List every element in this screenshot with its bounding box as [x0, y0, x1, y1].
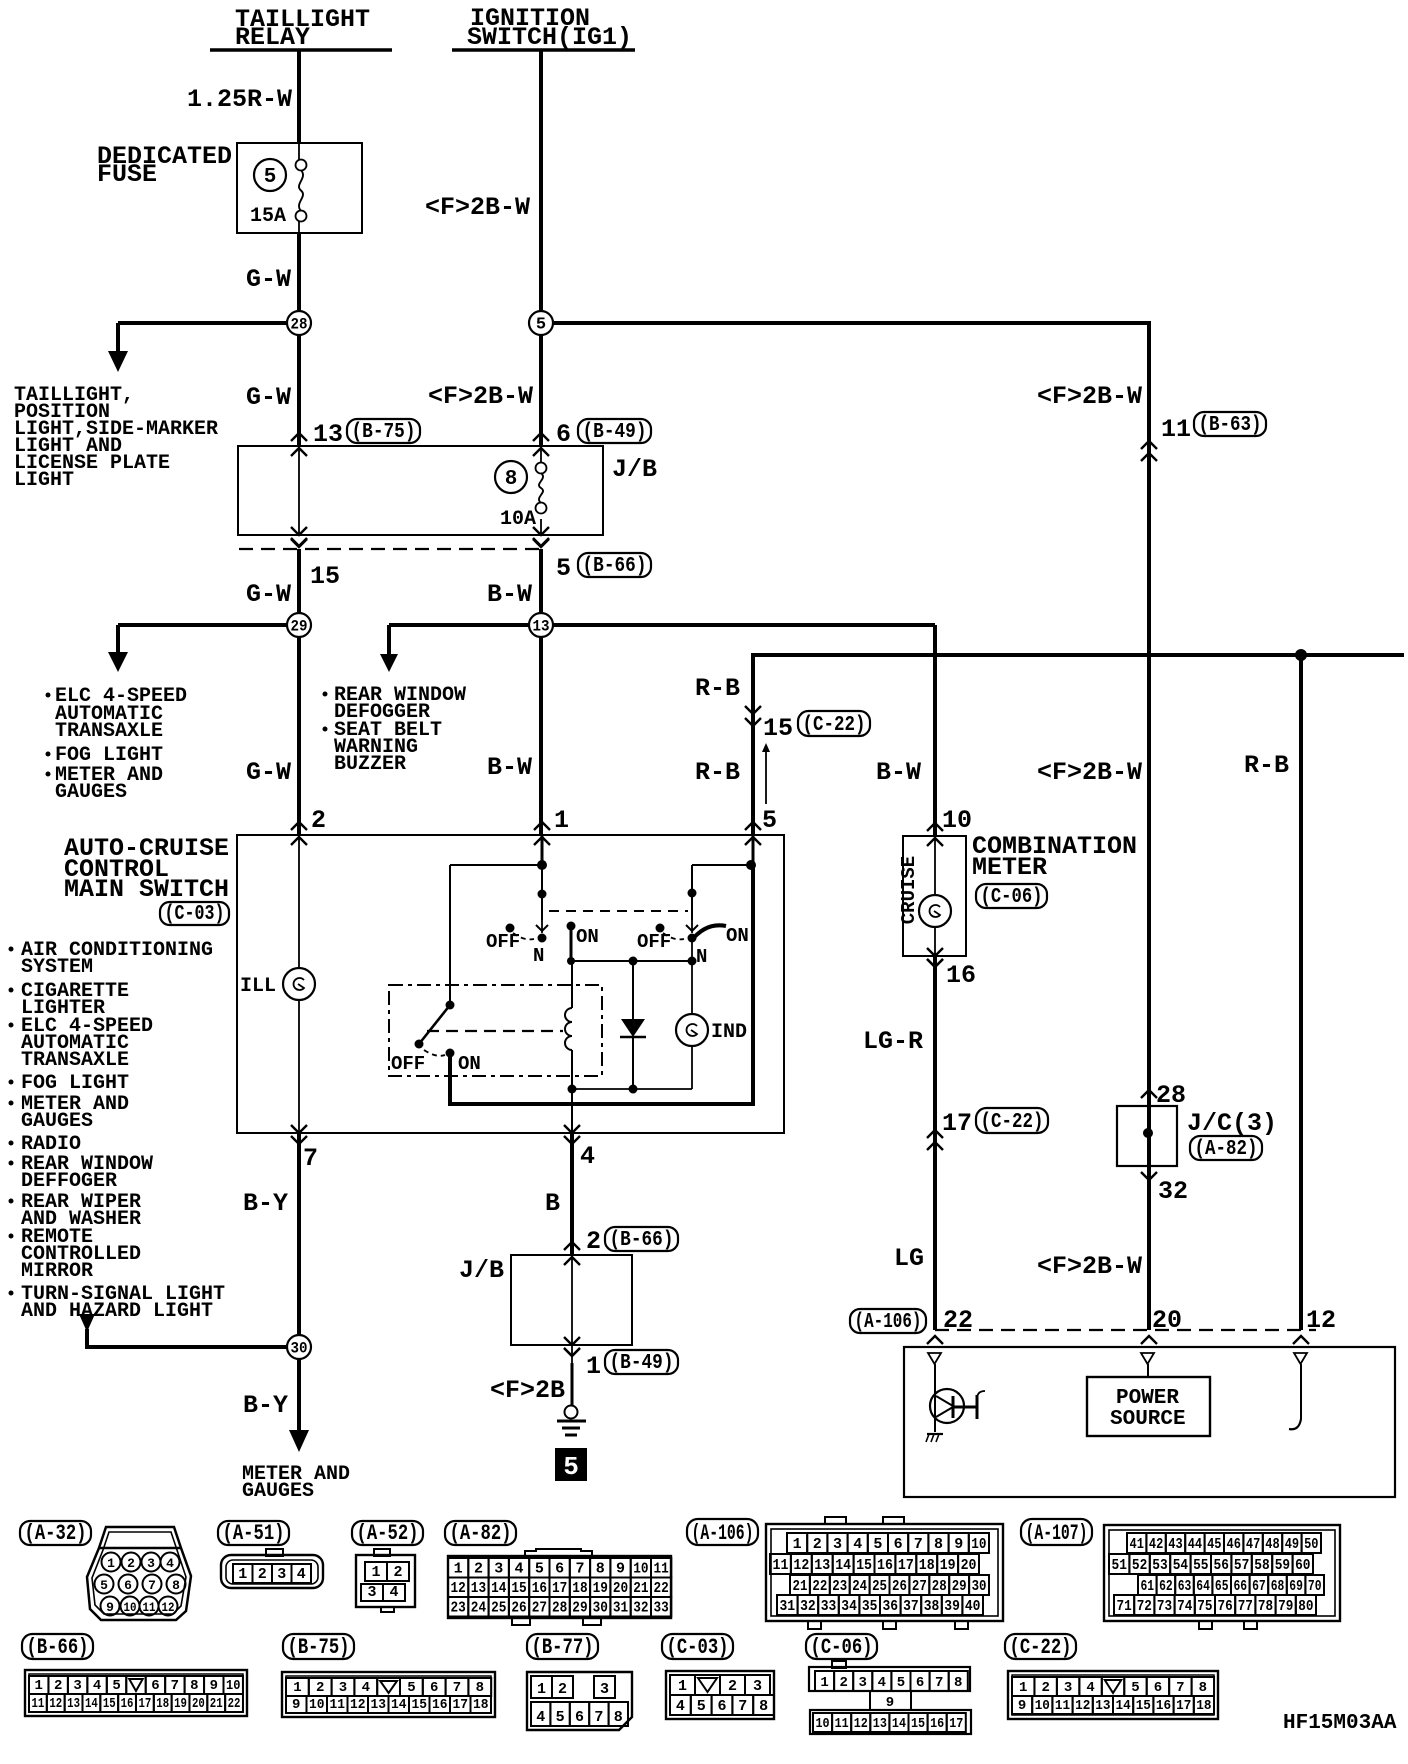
svg-text:28: 28 — [932, 1578, 947, 1595]
svg-text:N: N — [696, 946, 707, 968]
svg-text:(B-63): (B-63) — [1199, 414, 1262, 437]
svg-text:11: 11 — [773, 1557, 789, 1574]
svg-text:7: 7 — [303, 1144, 318, 1173]
svg-text:33: 33 — [821, 1598, 837, 1615]
svg-text:B: B — [545, 1189, 560, 1218]
svg-text:HF15M03AA: HF15M03AA — [1283, 1712, 1397, 1735]
svg-text:7: 7 — [935, 1675, 943, 1691]
svg-text:SWITCH(IG1): SWITCH(IG1) — [467, 23, 632, 52]
svg-text:METER: METER — [972, 853, 1047, 882]
svg-text:11: 11 — [654, 1561, 669, 1578]
svg-text:59: 59 — [1275, 1557, 1290, 1574]
svg-text:18: 18 — [919, 1557, 935, 1574]
svg-text:2: 2 — [813, 1536, 822, 1553]
svg-text:76: 76 — [1218, 1598, 1233, 1615]
svg-text:SOURCE: SOURCE — [1110, 1408, 1186, 1431]
svg-text:3: 3 — [147, 1556, 155, 1571]
svg-text:21: 21 — [210, 1696, 223, 1712]
svg-text:10: 10 — [124, 1600, 137, 1615]
svg-text:17: 17 — [138, 1696, 151, 1712]
svg-text:9: 9 — [1018, 1698, 1026, 1714]
svg-text:TRANSAXLE: TRANSAXLE — [21, 1049, 129, 1072]
svg-text:34: 34 — [841, 1598, 857, 1615]
svg-text:OFF: OFF — [637, 931, 671, 953]
svg-text:3: 3 — [277, 1566, 286, 1583]
svg-text:72: 72 — [1137, 1598, 1152, 1615]
svg-text:29: 29 — [291, 618, 308, 636]
svg-text:1: 1 — [35, 1678, 43, 1694]
svg-text:28: 28 — [552, 1600, 567, 1617]
svg-text:1: 1 — [554, 806, 569, 835]
svg-text:10: 10 — [226, 1678, 240, 1694]
svg-text:(A-51): (A-51) — [223, 1521, 285, 1546]
svg-text:SYSTEM: SYSTEM — [21, 956, 93, 979]
svg-text:10: 10 — [309, 1697, 325, 1713]
svg-text:6: 6 — [1154, 1680, 1162, 1696]
svg-text:5: 5 — [697, 1698, 706, 1715]
svg-text:17: 17 — [453, 1697, 469, 1713]
svg-text:40: 40 — [965, 1598, 981, 1615]
svg-text:35: 35 — [862, 1598, 878, 1615]
svg-text:3: 3 — [73, 1678, 81, 1694]
svg-text:16: 16 — [877, 1557, 893, 1574]
svg-text:30: 30 — [972, 1578, 987, 1595]
svg-text:36: 36 — [883, 1598, 899, 1615]
svg-text:(A-106): (A-106) — [855, 1311, 922, 1334]
svg-text:13: 13 — [873, 1716, 887, 1732]
svg-text:55: 55 — [1193, 1557, 1208, 1574]
svg-text:30: 30 — [291, 1340, 308, 1358]
svg-text:3: 3 — [833, 1536, 842, 1553]
svg-text:(C-22): (C-22) — [981, 1111, 1044, 1134]
svg-text:G-W: G-W — [246, 383, 291, 412]
svg-text:37: 37 — [903, 1598, 919, 1615]
svg-text:2: 2 — [558, 1681, 567, 1698]
svg-text:26: 26 — [892, 1578, 907, 1595]
svg-text:<F>2B: <F>2B — [490, 1376, 565, 1405]
svg-text:1: 1 — [107, 1556, 115, 1571]
svg-text:75: 75 — [1197, 1598, 1212, 1615]
svg-text:1: 1 — [454, 1561, 463, 1578]
svg-text:7: 7 — [914, 1536, 923, 1553]
svg-text:ON: ON — [726, 925, 749, 947]
svg-text:10: 10 — [971, 1536, 986, 1553]
svg-text:4: 4 — [166, 1556, 174, 1571]
svg-text:<F>2B-W: <F>2B-W — [1037, 1252, 1142, 1281]
svg-text:(A-107): (A-107) — [1026, 1521, 1088, 1546]
svg-text:9: 9 — [954, 1536, 963, 1553]
svg-text:11: 11 — [835, 1716, 849, 1732]
svg-text:6: 6 — [894, 1536, 903, 1553]
svg-text:9: 9 — [886, 1695, 894, 1711]
svg-text:79: 79 — [1278, 1598, 1293, 1615]
svg-text:DEFFOGER: DEFFOGER — [21, 1170, 117, 1193]
svg-text:20: 20 — [613, 1580, 628, 1597]
svg-text:20: 20 — [192, 1696, 205, 1712]
svg-text:19: 19 — [940, 1557, 956, 1574]
svg-text:64: 64 — [1196, 1578, 1210, 1595]
svg-text:5: 5 — [873, 1536, 882, 1553]
svg-text:AND HAZARD LIGHT: AND HAZARD LIGHT — [21, 1300, 213, 1323]
svg-text:31: 31 — [613, 1600, 628, 1617]
svg-text:14: 14 — [1116, 1698, 1131, 1714]
svg-text:2: 2 — [311, 806, 326, 835]
svg-text:5: 5 — [535, 1561, 544, 1578]
svg-text:6: 6 — [151, 1678, 159, 1694]
svg-text:1: 1 — [820, 1675, 828, 1691]
svg-text:1: 1 — [238, 1566, 247, 1583]
svg-text:11: 11 — [143, 1600, 156, 1615]
svg-text:21: 21 — [633, 1580, 648, 1597]
svg-text:67: 67 — [1252, 1578, 1266, 1595]
svg-text:17: 17 — [1176, 1698, 1191, 1714]
svg-text:B-Y: B-Y — [243, 1189, 288, 1218]
svg-text:4: 4 — [1086, 1680, 1094, 1696]
svg-text:13: 13 — [471, 1580, 486, 1597]
svg-text:13: 13 — [533, 618, 550, 636]
svg-text:32: 32 — [1158, 1177, 1188, 1206]
svg-text:32: 32 — [633, 1600, 648, 1617]
svg-text:GAUGES: GAUGES — [242, 1480, 314, 1503]
svg-text:<F>2B-W: <F>2B-W — [1037, 758, 1142, 787]
svg-text:POWER: POWER — [1116, 1387, 1179, 1410]
svg-text:5: 5 — [1131, 1680, 1139, 1696]
svg-text:47: 47 — [1246, 1536, 1260, 1553]
svg-text:50: 50 — [1304, 1536, 1318, 1553]
svg-text:63: 63 — [1178, 1578, 1192, 1595]
svg-text:1.25R-W: 1.25R-W — [187, 85, 292, 114]
svg-text:11: 11 — [32, 1696, 45, 1712]
svg-text:7: 7 — [148, 1578, 156, 1593]
svg-text:R-B: R-B — [695, 758, 740, 787]
svg-text:(A-106): (A-106) — [692, 1521, 754, 1546]
svg-text:ON: ON — [458, 1053, 481, 1075]
svg-text:14: 14 — [491, 1580, 506, 1597]
svg-text:8: 8 — [759, 1698, 768, 1715]
svg-text:B-W: B-W — [876, 758, 921, 787]
svg-text:16: 16 — [432, 1697, 448, 1713]
svg-text:BUZZER: BUZZER — [334, 753, 406, 776]
svg-text:15: 15 — [412, 1697, 428, 1713]
svg-text:16: 16 — [930, 1716, 944, 1732]
svg-text:G-W: G-W — [246, 580, 291, 609]
svg-text:2: 2 — [839, 1675, 847, 1691]
svg-text:8: 8 — [172, 1578, 180, 1593]
svg-text:RELAY: RELAY — [235, 23, 310, 52]
svg-text:27: 27 — [912, 1578, 927, 1595]
svg-text:3: 3 — [1064, 1680, 1072, 1696]
svg-text:48: 48 — [1265, 1536, 1279, 1553]
svg-text:42: 42 — [1149, 1536, 1163, 1553]
svg-text:1: 1 — [1019, 1680, 1027, 1696]
svg-text:4: 4 — [676, 1698, 685, 1715]
svg-text:5: 5 — [112, 1678, 120, 1694]
svg-text:4: 4 — [878, 1675, 886, 1691]
svg-text:5: 5 — [536, 316, 546, 335]
svg-text:1: 1 — [678, 1678, 687, 1695]
svg-text:6: 6 — [916, 1675, 924, 1691]
svg-text:15: 15 — [1136, 1698, 1151, 1714]
svg-text:10: 10 — [1035, 1698, 1050, 1714]
svg-text:11: 11 — [1161, 415, 1191, 444]
svg-text:23: 23 — [451, 1600, 466, 1617]
svg-text:66: 66 — [1234, 1578, 1248, 1595]
svg-text:3: 3 — [339, 1680, 347, 1696]
svg-text:8: 8 — [954, 1675, 962, 1691]
svg-text:5: 5 — [563, 1452, 579, 1482]
svg-text:<F>2B-W: <F>2B-W — [428, 382, 533, 411]
svg-text:3: 3 — [600, 1681, 609, 1698]
svg-text:9: 9 — [106, 1600, 114, 1615]
svg-text:77: 77 — [1238, 1598, 1253, 1615]
svg-text:2: 2 — [393, 1564, 402, 1581]
svg-text:2: 2 — [728, 1678, 737, 1695]
svg-text:21: 21 — [793, 1578, 808, 1595]
svg-text:(C-06): (C-06) — [811, 1635, 873, 1660]
svg-text:23: 23 — [832, 1578, 847, 1595]
svg-text:GAUGES: GAUGES — [21, 1110, 93, 1133]
svg-text:41: 41 — [1130, 1536, 1144, 1553]
svg-text:(C-03): (C-03) — [165, 903, 225, 926]
svg-text:13: 13 — [67, 1696, 80, 1712]
svg-text:22: 22 — [812, 1578, 827, 1595]
svg-text:4: 4 — [297, 1566, 306, 1583]
svg-text:1: 1 — [537, 1681, 546, 1698]
svg-text:(B-77): (B-77) — [532, 1635, 594, 1660]
svg-text:15: 15 — [763, 714, 793, 743]
svg-text:CRUISE: CRUISE — [898, 856, 920, 924]
svg-text:6: 6 — [575, 1709, 584, 1726]
svg-text:13: 13 — [814, 1557, 830, 1574]
svg-text:27: 27 — [532, 1600, 547, 1617]
svg-text:LG-R: LG-R — [863, 1027, 923, 1056]
svg-text:1: 1 — [371, 1564, 380, 1581]
svg-text:8: 8 — [934, 1536, 943, 1553]
svg-text:2: 2 — [54, 1678, 62, 1694]
svg-text:12: 12 — [451, 1580, 466, 1597]
svg-text:12: 12 — [1075, 1698, 1090, 1714]
svg-text:18: 18 — [156, 1696, 169, 1712]
svg-text:2: 2 — [258, 1566, 267, 1583]
svg-text:31: 31 — [780, 1598, 796, 1615]
svg-text:70: 70 — [1308, 1578, 1322, 1595]
svg-text:(C-22): (C-22) — [1010, 1635, 1072, 1660]
svg-text:56: 56 — [1214, 1557, 1229, 1574]
svg-text:1: 1 — [293, 1680, 301, 1696]
svg-text:29: 29 — [572, 1600, 587, 1617]
svg-text:2: 2 — [474, 1561, 483, 1578]
svg-text:5: 5 — [264, 166, 277, 189]
svg-text:9: 9 — [616, 1561, 625, 1578]
svg-text:8: 8 — [596, 1561, 605, 1578]
svg-text:61: 61 — [1141, 1578, 1155, 1595]
svg-text:(B-75): (B-75) — [288, 1635, 350, 1660]
svg-text:4: 4 — [389, 1584, 398, 1601]
svg-text:53: 53 — [1152, 1557, 1167, 1574]
svg-text:7: 7 — [1176, 1680, 1184, 1696]
svg-text:OFF: OFF — [391, 1053, 425, 1075]
svg-text:G-W: G-W — [246, 265, 291, 294]
svg-text:10: 10 — [942, 806, 972, 835]
svg-text:ON: ON — [576, 926, 599, 948]
svg-text:18: 18 — [572, 1580, 587, 1597]
svg-text:4: 4 — [853, 1536, 862, 1553]
svg-text:FUSE: FUSE — [97, 160, 157, 189]
svg-text:G-W: G-W — [246, 758, 291, 787]
svg-text:17: 17 — [898, 1557, 914, 1574]
svg-text:57: 57 — [1234, 1557, 1249, 1574]
svg-text:65: 65 — [1215, 1578, 1229, 1595]
svg-text:25: 25 — [491, 1600, 506, 1617]
svg-text:38: 38 — [924, 1598, 940, 1615]
svg-text:6: 6 — [717, 1698, 726, 1715]
svg-text:16: 16 — [946, 961, 976, 990]
svg-text:19: 19 — [593, 1580, 608, 1597]
svg-text:80: 80 — [1298, 1598, 1313, 1615]
svg-text:14: 14 — [85, 1696, 98, 1712]
svg-text:43: 43 — [1168, 1536, 1182, 1553]
svg-text:R-B: R-B — [695, 674, 740, 703]
svg-text:5: 5 — [556, 554, 571, 583]
svg-text:10: 10 — [816, 1716, 830, 1732]
svg-text:78: 78 — [1258, 1598, 1273, 1615]
svg-text:GAUGES: GAUGES — [55, 781, 127, 804]
svg-text:(A-32): (A-32) — [25, 1521, 87, 1546]
svg-text:6: 6 — [124, 1578, 132, 1593]
svg-text:4: 4 — [580, 1142, 595, 1171]
svg-text:(B-49): (B-49) — [610, 1352, 674, 1375]
svg-text:25: 25 — [872, 1578, 887, 1595]
svg-text:15A: 15A — [250, 205, 286, 228]
svg-text:12: 12 — [49, 1696, 62, 1712]
svg-text:4: 4 — [536, 1709, 545, 1726]
svg-text:5: 5 — [762, 806, 777, 835]
svg-text:B-W: B-W — [487, 753, 532, 782]
svg-text:44: 44 — [1188, 1536, 1202, 1553]
svg-text:12: 12 — [162, 1600, 175, 1615]
svg-text:46: 46 — [1227, 1536, 1241, 1553]
svg-text:24: 24 — [471, 1600, 486, 1617]
svg-text:(A-82): (A-82) — [1195, 1138, 1258, 1161]
svg-text:33: 33 — [654, 1600, 669, 1617]
svg-text:2: 2 — [316, 1680, 324, 1696]
svg-text:(B-49): (B-49) — [583, 421, 647, 444]
svg-text:13: 13 — [1095, 1698, 1110, 1714]
svg-text:LG: LG — [894, 1244, 924, 1273]
svg-text:13: 13 — [313, 420, 343, 449]
svg-text:7: 7 — [594, 1709, 603, 1726]
svg-text:TRANSAXLE: TRANSAXLE — [55, 720, 163, 743]
svg-text:6: 6 — [555, 1561, 564, 1578]
svg-text:J/B: J/B — [459, 1256, 504, 1285]
svg-text:(B-75): (B-75) — [352, 421, 416, 444]
svg-text:MAIN SWITCH: MAIN SWITCH — [64, 875, 229, 904]
svg-text:49: 49 — [1285, 1536, 1299, 1553]
svg-text:12: 12 — [350, 1697, 366, 1713]
svg-text:2: 2 — [1041, 1680, 1049, 1696]
svg-text:60: 60 — [1295, 1557, 1310, 1574]
svg-text:11: 11 — [1055, 1698, 1070, 1714]
svg-text:8: 8 — [505, 468, 518, 491]
svg-text:14: 14 — [892, 1716, 906, 1732]
svg-text:(C-22): (C-22) — [803, 714, 866, 737]
svg-text:22: 22 — [228, 1696, 241, 1712]
svg-text:7: 7 — [575, 1561, 584, 1578]
svg-text:10: 10 — [633, 1561, 648, 1578]
svg-text:17: 17 — [949, 1716, 963, 1732]
svg-text:6: 6 — [430, 1680, 438, 1696]
svg-text:(A-82): (A-82) — [450, 1521, 512, 1546]
svg-text:2: 2 — [586, 1227, 601, 1256]
svg-text:15: 15 — [856, 1557, 872, 1574]
svg-text:4: 4 — [362, 1680, 370, 1696]
svg-text:16: 16 — [121, 1696, 134, 1712]
svg-text:29: 29 — [952, 1578, 967, 1595]
svg-text:IND: IND — [711, 1021, 747, 1044]
svg-text:(A-52): (A-52) — [357, 1521, 419, 1546]
svg-text:17: 17 — [552, 1580, 567, 1597]
svg-text:1: 1 — [586, 1352, 601, 1381]
svg-text:69: 69 — [1289, 1578, 1303, 1595]
svg-text:<F>2B-W: <F>2B-W — [425, 193, 530, 222]
svg-text:(C-06): (C-06) — [981, 886, 1043, 909]
svg-text:74: 74 — [1177, 1598, 1192, 1615]
svg-text:30: 30 — [593, 1600, 608, 1617]
svg-text:N: N — [533, 945, 544, 967]
svg-text:J/B: J/B — [612, 455, 657, 484]
svg-text:71: 71 — [1117, 1598, 1132, 1615]
svg-text:45: 45 — [1207, 1536, 1221, 1553]
svg-text:FOG LIGHT: FOG LIGHT — [21, 1072, 129, 1095]
svg-text:7: 7 — [171, 1678, 179, 1694]
svg-text:10A: 10A — [500, 508, 536, 531]
svg-text:6: 6 — [556, 420, 571, 449]
svg-text:15: 15 — [511, 1580, 526, 1597]
svg-text:(B-66): (B-66) — [583, 555, 647, 578]
svg-text:7: 7 — [738, 1698, 747, 1715]
svg-text:14: 14 — [835, 1557, 851, 1574]
svg-text:20: 20 — [961, 1557, 977, 1574]
svg-text:8: 8 — [476, 1680, 484, 1696]
svg-text:R-B: R-B — [1244, 751, 1289, 780]
svg-text:B-W: B-W — [487, 580, 532, 609]
svg-text:73: 73 — [1157, 1598, 1172, 1615]
svg-text:OFF: OFF — [486, 931, 520, 953]
svg-text:12: 12 — [854, 1716, 868, 1732]
svg-text:8: 8 — [190, 1678, 198, 1694]
svg-text:4: 4 — [515, 1561, 524, 1578]
svg-text:62: 62 — [1159, 1578, 1173, 1595]
svg-text:9: 9 — [210, 1678, 218, 1694]
svg-text:3: 3 — [859, 1675, 867, 1691]
svg-text:58: 58 — [1254, 1557, 1269, 1574]
svg-text:18: 18 — [1196, 1698, 1211, 1714]
svg-text:14: 14 — [391, 1697, 407, 1713]
svg-text:52: 52 — [1132, 1557, 1147, 1574]
svg-text:5: 5 — [100, 1578, 108, 1593]
svg-text:12: 12 — [793, 1557, 809, 1574]
svg-text:J/C(3): J/C(3) — [1187, 1109, 1277, 1138]
svg-text:ILL: ILL — [240, 975, 276, 998]
svg-text:3: 3 — [753, 1678, 762, 1695]
svg-text:11: 11 — [330, 1697, 346, 1713]
svg-text:16: 16 — [532, 1580, 547, 1597]
svg-text:24: 24 — [852, 1578, 867, 1595]
svg-text:17: 17 — [942, 1109, 972, 1138]
svg-text:54: 54 — [1173, 1557, 1188, 1574]
svg-text:15: 15 — [310, 562, 340, 591]
svg-text:32: 32 — [800, 1598, 816, 1615]
